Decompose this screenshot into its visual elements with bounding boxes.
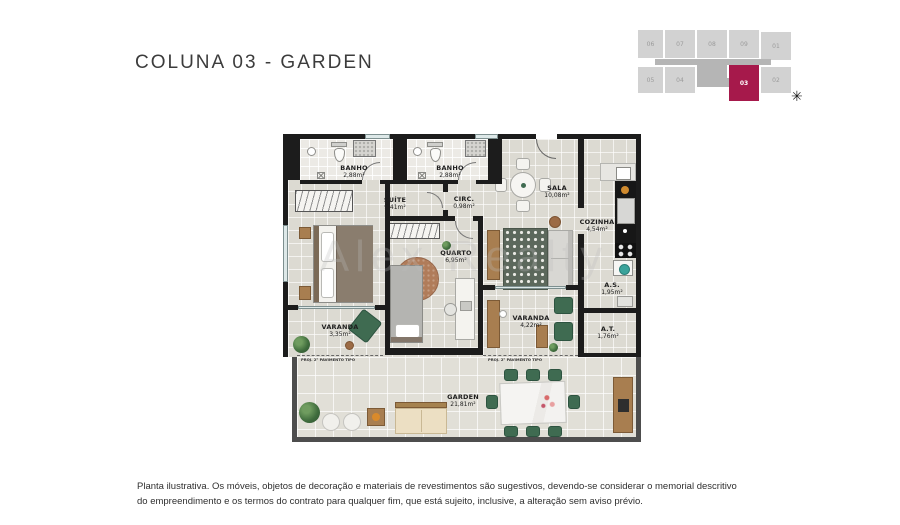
room-area: 4,22m² bbox=[511, 322, 551, 329]
side-table bbox=[549, 216, 561, 228]
kitchen-dark-counter bbox=[615, 181, 636, 243]
wall-bedroom-top-a bbox=[385, 216, 455, 221]
room-name: BANHO bbox=[334, 164, 374, 172]
suite-nightstand-2 bbox=[299, 286, 311, 300]
floor-plan: PROJ. 2° PAVIMENTO TIPO PROJ. 2° PAVIMEN… bbox=[283, 134, 641, 442]
shower-box bbox=[465, 140, 486, 157]
kitchen-sink bbox=[616, 167, 631, 180]
compass-icon: ✳ bbox=[791, 88, 803, 105]
varanda-armchair bbox=[554, 297, 573, 314]
bedroom-desk bbox=[455, 278, 475, 340]
kitchen-counter bbox=[600, 163, 636, 181]
garden-wall-left bbox=[292, 357, 297, 442]
side-table bbox=[499, 310, 507, 318]
flame-icon bbox=[372, 413, 380, 421]
oven-icon bbox=[617, 198, 635, 224]
room-name: BANHO bbox=[430, 164, 470, 172]
bed-pillow bbox=[321, 268, 334, 298]
garden-chair bbox=[486, 395, 498, 409]
room-label-quarto: QUARTO6,95m² bbox=[436, 249, 476, 264]
wall-circ-a bbox=[443, 180, 448, 192]
garden-chair bbox=[548, 426, 562, 437]
washer-door-icon bbox=[619, 264, 630, 275]
sala-varanda-slider bbox=[495, 286, 566, 289]
wall-as-at bbox=[584, 308, 636, 313]
garden-chair bbox=[568, 395, 580, 409]
garden-sideboard bbox=[613, 377, 633, 433]
knob-icon bbox=[623, 229, 627, 233]
wall-bedroom-bottom bbox=[385, 348, 483, 355]
fire-pit bbox=[367, 408, 385, 426]
room-name: SALA bbox=[537, 184, 577, 192]
suite-double-bed bbox=[313, 225, 373, 303]
page: COLUNA 03 - GARDEN 06 07 08 09 01 05 04 … bbox=[0, 0, 900, 525]
shower-box bbox=[353, 140, 376, 157]
varanda-bench bbox=[487, 300, 500, 348]
living-rug bbox=[503, 228, 548, 290]
garden-chair bbox=[526, 426, 540, 437]
room-label-sala: SALA10,08m² bbox=[537, 184, 577, 199]
suite-wardrobe bbox=[295, 190, 353, 212]
room-name: A.S. bbox=[592, 281, 632, 289]
round-dining-table bbox=[510, 172, 536, 198]
wall-top-b bbox=[557, 134, 641, 139]
room-area: 6,95m² bbox=[436, 257, 476, 264]
desk-item bbox=[460, 301, 472, 311]
bed-headboard bbox=[391, 337, 422, 342]
room-label-varanda-dir: VARANDA4,22m² bbox=[511, 314, 551, 329]
garden-pouf bbox=[343, 413, 361, 431]
suite-nightstand-1 bbox=[299, 227, 311, 239]
wall-bathroom-bottom-c bbox=[476, 180, 502, 184]
garden-chair bbox=[526, 369, 540, 381]
keyplan-unit-07: 07 bbox=[665, 30, 695, 58]
bed-blanket bbox=[336, 226, 373, 302]
dining-chair bbox=[516, 158, 530, 170]
garden-pouf bbox=[322, 413, 340, 431]
page-title: COLUNA 03 - GARDEN bbox=[135, 52, 374, 74]
bedroom-single-bed bbox=[390, 265, 423, 343]
toilet-tank bbox=[427, 142, 443, 147]
projection-label-right: PROJ. 2° PAVIMENTO TIPO bbox=[488, 358, 542, 362]
wall-sala-varanda-b bbox=[566, 285, 578, 290]
toilet-tank bbox=[331, 142, 347, 147]
projection-line-left bbox=[297, 355, 383, 356]
wall-bathroom2-right bbox=[488, 134, 502, 184]
bed-pillow bbox=[395, 324, 420, 338]
floor-drain-icon bbox=[418, 172, 426, 179]
room-area: 2,88m² bbox=[430, 172, 470, 179]
living-sofa bbox=[548, 230, 573, 288]
garden-chair bbox=[504, 369, 518, 381]
keyplan-unit-09: 09 bbox=[729, 30, 759, 58]
bedroom-wardrobe bbox=[387, 223, 440, 239]
room-label-banho-2: BANHO2,88m² bbox=[430, 164, 470, 179]
room-name: GARDEN bbox=[443, 393, 483, 401]
room-label-as: A.S.1,95m² bbox=[592, 281, 632, 296]
room-label-garden: GARDEN21,81m² bbox=[443, 393, 483, 408]
sofa-cushion-line bbox=[421, 410, 422, 432]
room-label-at: A.T.1,76m² bbox=[588, 325, 628, 340]
room-label-suite: SUÍTE9,41m² bbox=[375, 196, 415, 211]
garden-wall-bottom bbox=[292, 437, 641, 442]
disclaimer-line-1: Planta ilustrativa. Os móveis, objetos d… bbox=[137, 480, 837, 495]
side-table bbox=[345, 341, 354, 350]
bathroom-2-window bbox=[475, 134, 498, 139]
projection-label-left: PROJ. 2° PAVIMENTO TIPO bbox=[301, 358, 355, 362]
keyplan-unit-08: 08 bbox=[697, 30, 727, 58]
cooktop-item bbox=[621, 186, 629, 194]
wall-shaft bbox=[288, 134, 300, 180]
plant-icon bbox=[299, 402, 320, 423]
room-label-banho-1: BANHO2,88m² bbox=[334, 164, 374, 179]
room-area: 4,54m² bbox=[577, 226, 617, 233]
dining-chair bbox=[516, 200, 530, 212]
bed-pillow bbox=[321, 232, 334, 262]
garden-sofa bbox=[395, 408, 447, 434]
room-name: VARANDA bbox=[511, 314, 551, 322]
wall-bathroom-divider bbox=[393, 134, 407, 184]
disclaimer-line-2: do empreendimento e os termos do contrat… bbox=[137, 495, 837, 510]
room-label-circ: CIRC.0,98m² bbox=[447, 195, 481, 210]
room-name: VARANDA bbox=[320, 323, 360, 331]
building-key-plan: 06 07 08 09 01 05 04 03 02 ✳ bbox=[633, 28, 808, 108]
room-name: COZINHA bbox=[577, 218, 617, 226]
wall-at-bottom bbox=[584, 353, 641, 357]
room-area: 2,88m² bbox=[334, 172, 374, 179]
keyplan-unit-01: 01 bbox=[761, 32, 791, 60]
room-name: SUÍTE bbox=[375, 196, 415, 204]
garden-chair bbox=[548, 369, 562, 381]
room-label-cozinha: COZINHA4,54m² bbox=[577, 218, 617, 233]
suite-varanda-slider bbox=[298, 306, 375, 309]
bathroom-1-window bbox=[365, 134, 390, 139]
sink-icon bbox=[307, 147, 316, 156]
room-area: 1,95m² bbox=[592, 289, 632, 296]
room-area: 1,76m² bbox=[588, 333, 628, 340]
sofa-cushion-line bbox=[551, 258, 569, 259]
wall-bathroom-bottom-a bbox=[300, 180, 362, 184]
garden-wall-right bbox=[636, 357, 641, 442]
table-centerpiece bbox=[521, 183, 526, 188]
tv-console bbox=[487, 230, 500, 280]
wall-suite-varanda-a bbox=[288, 305, 298, 310]
room-area: 3,35m² bbox=[320, 331, 360, 338]
room-label-varanda-esq: VARANDA3,35m² bbox=[320, 323, 360, 338]
wall-sala-varanda-a bbox=[483, 285, 495, 290]
keyplan-unit-05: 05 bbox=[638, 67, 663, 93]
plant-icon bbox=[549, 343, 558, 352]
room-name: CIRC. bbox=[447, 195, 481, 203]
washing-machine bbox=[613, 260, 633, 276]
wall-right bbox=[636, 134, 641, 357]
sofa-back bbox=[568, 231, 572, 287]
room-area: 10,08m² bbox=[537, 192, 577, 199]
room-name: QUARTO bbox=[436, 249, 476, 257]
laundry-tank bbox=[617, 296, 633, 307]
sideboard-item bbox=[618, 399, 629, 412]
stove-icon bbox=[615, 243, 636, 258]
keyplan-core-block bbox=[697, 59, 727, 87]
floor-drain-icon bbox=[317, 172, 325, 179]
sink-icon bbox=[413, 147, 422, 156]
projection-line-right bbox=[483, 355, 578, 356]
room-area: 9,41m² bbox=[375, 204, 415, 211]
bed-headboard bbox=[314, 226, 319, 302]
room-name: A.T. bbox=[588, 325, 628, 333]
room-area: 0,98m² bbox=[447, 203, 481, 210]
keyplan-unit-04: 04 bbox=[665, 67, 695, 93]
keyplan-unit-02: 02 bbox=[761, 67, 791, 93]
disclaimer: Planta ilustrativa. Os móveis, objetos d… bbox=[137, 480, 837, 509]
suite-window bbox=[283, 225, 288, 282]
garden-dining-table bbox=[499, 381, 566, 425]
varanda-armchair bbox=[554, 322, 573, 341]
plant-icon bbox=[293, 336, 310, 353]
wall-suite-varanda-b bbox=[375, 305, 385, 310]
keyplan-unit-03-highlighted: 03 bbox=[729, 65, 759, 101]
wall-kitchen-left-a bbox=[578, 139, 584, 208]
keyplan-unit-06: 06 bbox=[638, 30, 663, 58]
desk-chair bbox=[444, 303, 457, 316]
wall-kitchen-left-b bbox=[578, 234, 584, 357]
garden-chair bbox=[504, 426, 518, 437]
room-area: 21,81m² bbox=[443, 401, 483, 408]
